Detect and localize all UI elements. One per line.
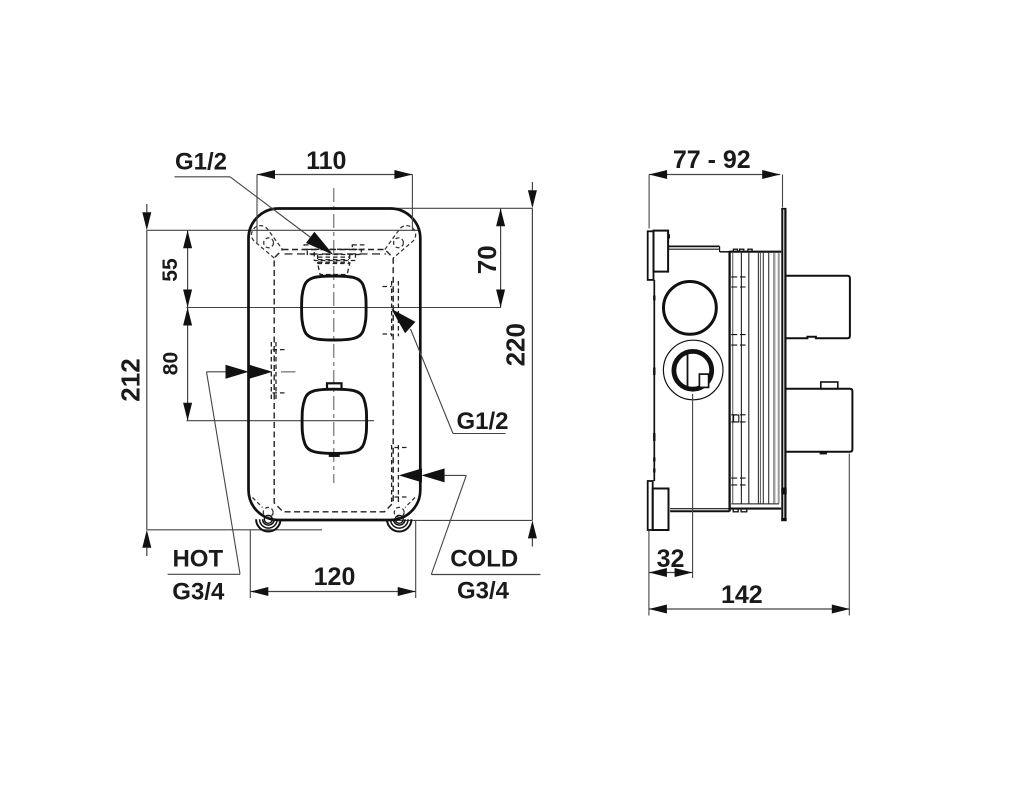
svg-text:HOT: HOT xyxy=(172,546,223,573)
svg-text:212: 212 xyxy=(116,358,146,401)
svg-text:80: 80 xyxy=(160,352,183,375)
svg-text:32: 32 xyxy=(657,545,685,573)
svg-text:220: 220 xyxy=(500,323,530,366)
svg-text:55: 55 xyxy=(159,258,182,282)
svg-text:G3/4: G3/4 xyxy=(172,579,225,606)
svg-text:G1/2: G1/2 xyxy=(175,148,227,175)
svg-text:120: 120 xyxy=(314,563,356,591)
svg-text:110: 110 xyxy=(306,147,346,175)
svg-text:COLD: COLD xyxy=(450,546,518,573)
svg-text:142: 142 xyxy=(721,581,763,609)
svg-text:G3/4: G3/4 xyxy=(457,578,510,605)
svg-text:77 - 92: 77 - 92 xyxy=(673,146,751,174)
svg-text:70: 70 xyxy=(472,245,502,274)
svg-text:G1/2: G1/2 xyxy=(457,408,509,435)
